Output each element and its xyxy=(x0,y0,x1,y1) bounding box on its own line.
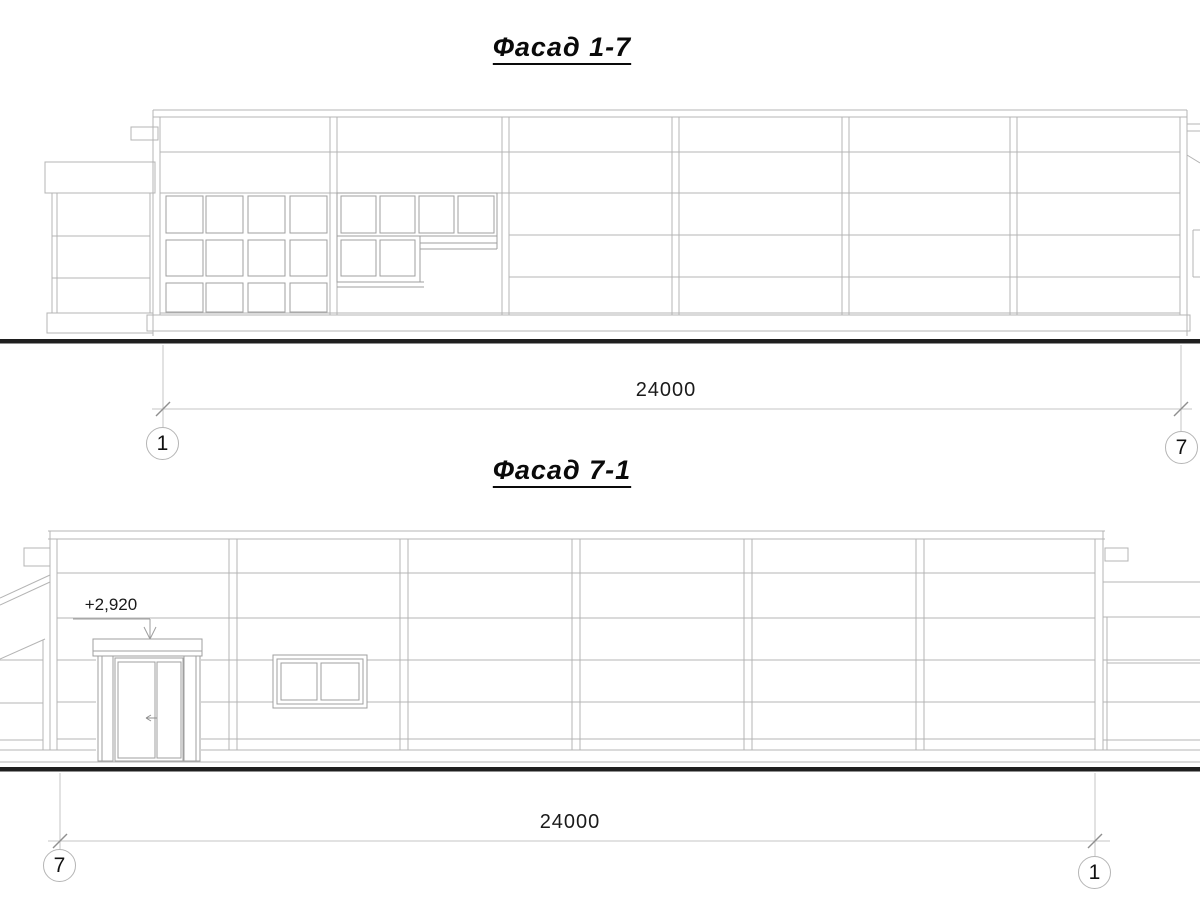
facade-7-1-drawing xyxy=(0,531,1200,856)
door-post-left xyxy=(98,656,113,761)
axis-marker-top-left-label: 1 xyxy=(157,432,169,456)
door-leaf-left xyxy=(118,662,155,758)
door-post-right xyxy=(184,656,200,761)
facade-top-title: Фасад 1-7 xyxy=(402,32,722,63)
drawing-sheet: Фасад 1-7 24000 1 7 Фасад 7-1 +2,920 240… xyxy=(0,0,1200,900)
facade-1-7-window-grid-bay1 xyxy=(166,196,327,312)
door-canopy xyxy=(93,639,202,656)
axis-marker-bottom-right: 1 xyxy=(1078,856,1111,889)
facade-1-7-left-annex xyxy=(45,162,155,333)
facade-7-1-main-building xyxy=(0,531,1200,762)
ground-line-top xyxy=(0,339,1200,344)
axis-marker-bottom-left-label: 7 xyxy=(54,854,66,878)
facade-bottom-title: Фасад 7-1 xyxy=(402,455,722,486)
door-leaf-right xyxy=(157,662,181,758)
axis-marker-top-right: 7 xyxy=(1165,431,1198,464)
roof-stub xyxy=(131,127,158,140)
facade-7-1-right-cut-structure xyxy=(1103,548,1200,750)
facade-7-1-left-cut-structure xyxy=(0,548,50,750)
door-frame xyxy=(115,658,183,761)
elevation-leader xyxy=(73,619,156,639)
facade-7-1-window xyxy=(273,655,367,708)
facades-linework xyxy=(0,0,1200,900)
facade-top-dimension-text: 24000 xyxy=(566,379,766,402)
axis-marker-bottom-left: 7 xyxy=(43,849,76,882)
ground-line-bottom xyxy=(0,767,1200,772)
elevation-mark-text: +2,920 xyxy=(76,595,146,615)
axis-marker-top-left: 1 xyxy=(146,427,179,460)
axis-marker-bottom-right-label: 1 xyxy=(1089,861,1101,885)
facade-1-7-window-grid-bay2 xyxy=(337,193,497,287)
facade-bottom-dimension-text: 24000 xyxy=(470,811,670,834)
axis-marker-top-right-label: 7 xyxy=(1176,436,1188,460)
facade-1-7-right-cut-structure xyxy=(1187,124,1200,277)
facade-7-1-entrance xyxy=(93,639,202,761)
